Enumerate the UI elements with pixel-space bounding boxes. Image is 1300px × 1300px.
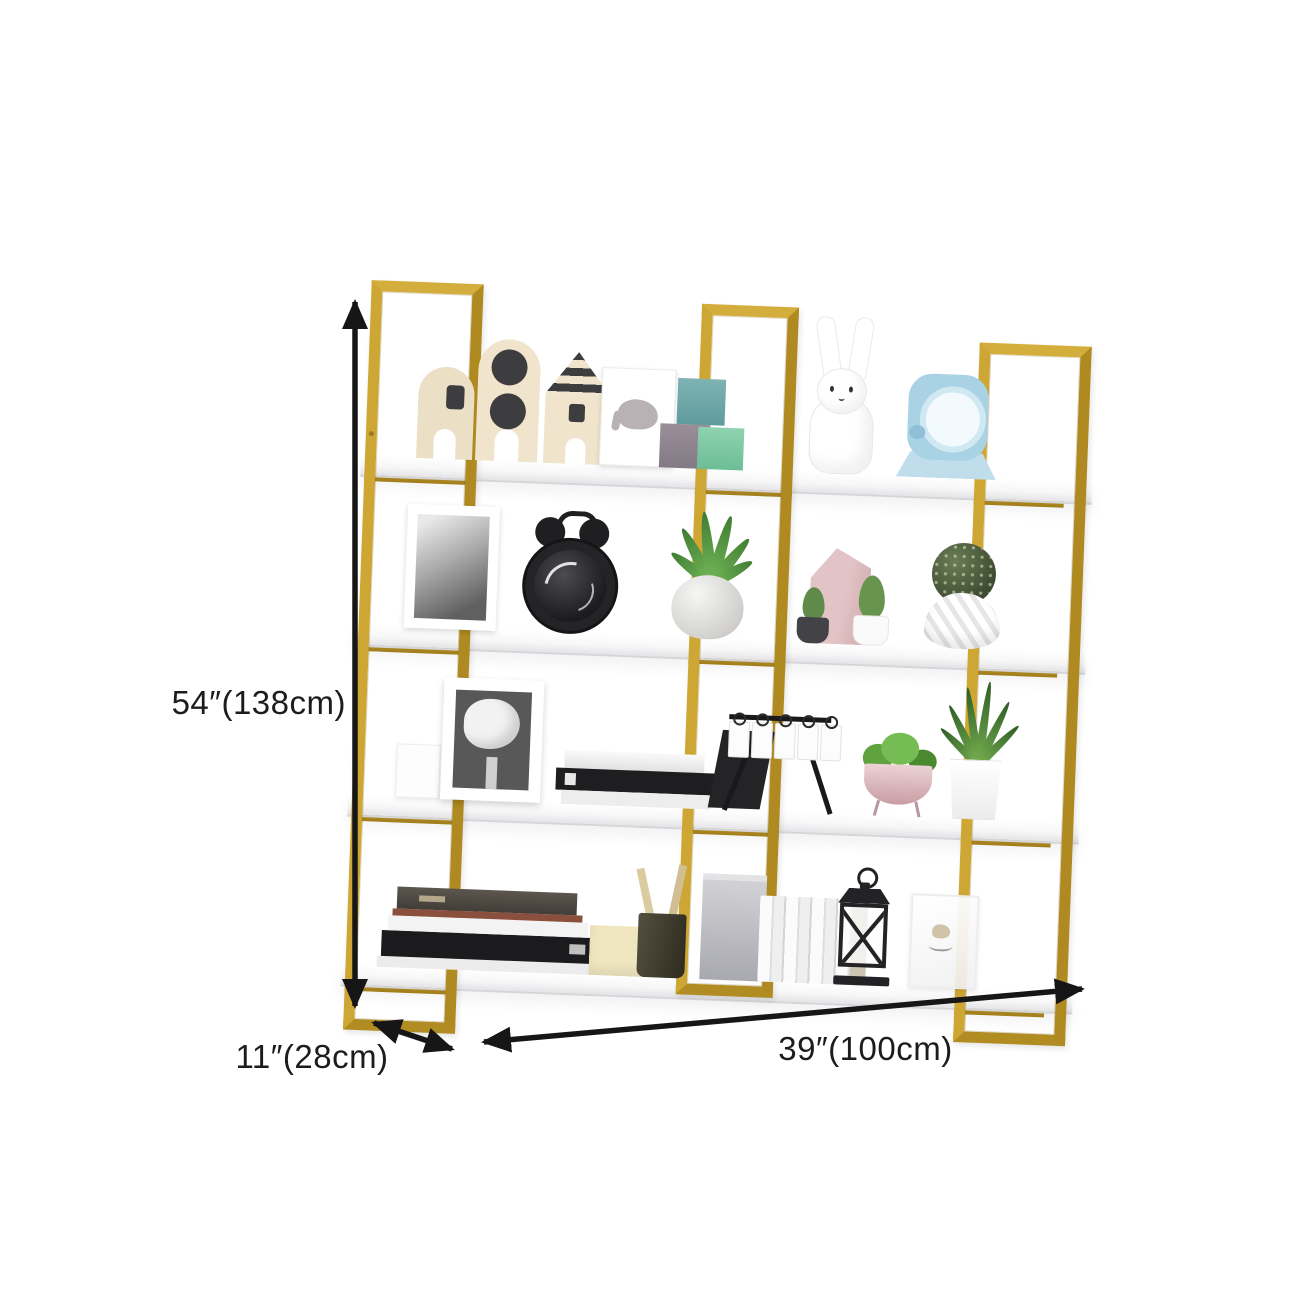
blue-table-fan-icon	[896, 358, 1000, 480]
detail	[909, 425, 926, 440]
detail	[852, 615, 889, 646]
cactus-ball-vase-icon	[921, 530, 1005, 651]
product-dimension-image: 54″(138cm) 11″(28cm) 39″(100cm)	[0, 0, 1300, 1300]
detail	[796, 617, 829, 644]
detail	[923, 592, 1001, 651]
detail	[670, 574, 744, 641]
mini-cactus-black-pot-icon	[796, 585, 830, 644]
detail	[491, 349, 528, 386]
potted-plant-icon	[656, 487, 762, 641]
detail	[906, 373, 989, 462]
lantern-icon	[829, 866, 897, 986]
detail	[414, 514, 490, 621]
height-dimension-label: 54″(138cm)	[150, 684, 346, 722]
mini-cactus-white-pot-icon	[852, 571, 891, 646]
stacking-cube-green-icon	[697, 427, 745, 471]
detail	[520, 536, 620, 636]
card-display-rack-icon	[710, 714, 849, 815]
detail	[433, 429, 456, 460]
detail	[873, 800, 880, 816]
detail	[636, 913, 686, 979]
detail	[565, 438, 586, 465]
screw-dot	[353, 851, 358, 856]
detail	[820, 725, 842, 762]
detail	[728, 721, 750, 758]
detail	[569, 404, 586, 423]
detail	[533, 549, 608, 624]
detail	[452, 690, 532, 791]
white-pot-succulent-icon	[930, 686, 1019, 821]
detail	[797, 724, 819, 761]
toy-house-arch-icon	[416, 366, 475, 460]
detail	[919, 385, 987, 453]
elephant-icon	[617, 399, 658, 431]
detail	[838, 903, 888, 969]
pencil-cup-icon	[636, 865, 692, 979]
stacking-cube-teal-icon	[677, 378, 727, 426]
detail	[858, 575, 886, 620]
large-book-stack-icon	[376, 881, 604, 976]
small-white-box-icon	[395, 743, 441, 799]
detail	[556, 510, 599, 535]
detail	[446, 385, 465, 410]
screw-dot	[369, 431, 374, 436]
detail	[863, 763, 932, 806]
width-dimension-label: 39″(100cm)	[738, 1030, 993, 1068]
portrait-photo-frame-icon	[403, 504, 500, 631]
book-stack-icon	[555, 748, 722, 810]
detail	[914, 801, 920, 817]
rose-photo-frame-icon	[440, 677, 545, 803]
rabbit-figurine-icon	[806, 323, 884, 476]
detail	[946, 759, 1004, 821]
bookshelf-unit	[340, 275, 1099, 1072]
depth-dimension-label: 11″(28cm)	[212, 1038, 412, 1076]
detail	[774, 723, 796, 760]
detail	[751, 722, 773, 759]
detail	[494, 429, 519, 462]
clear-photo-frame-icon	[908, 893, 980, 990]
toy-house-circles-icon	[475, 338, 542, 462]
detail	[489, 393, 526, 430]
alarm-clock-icon	[518, 516, 622, 636]
